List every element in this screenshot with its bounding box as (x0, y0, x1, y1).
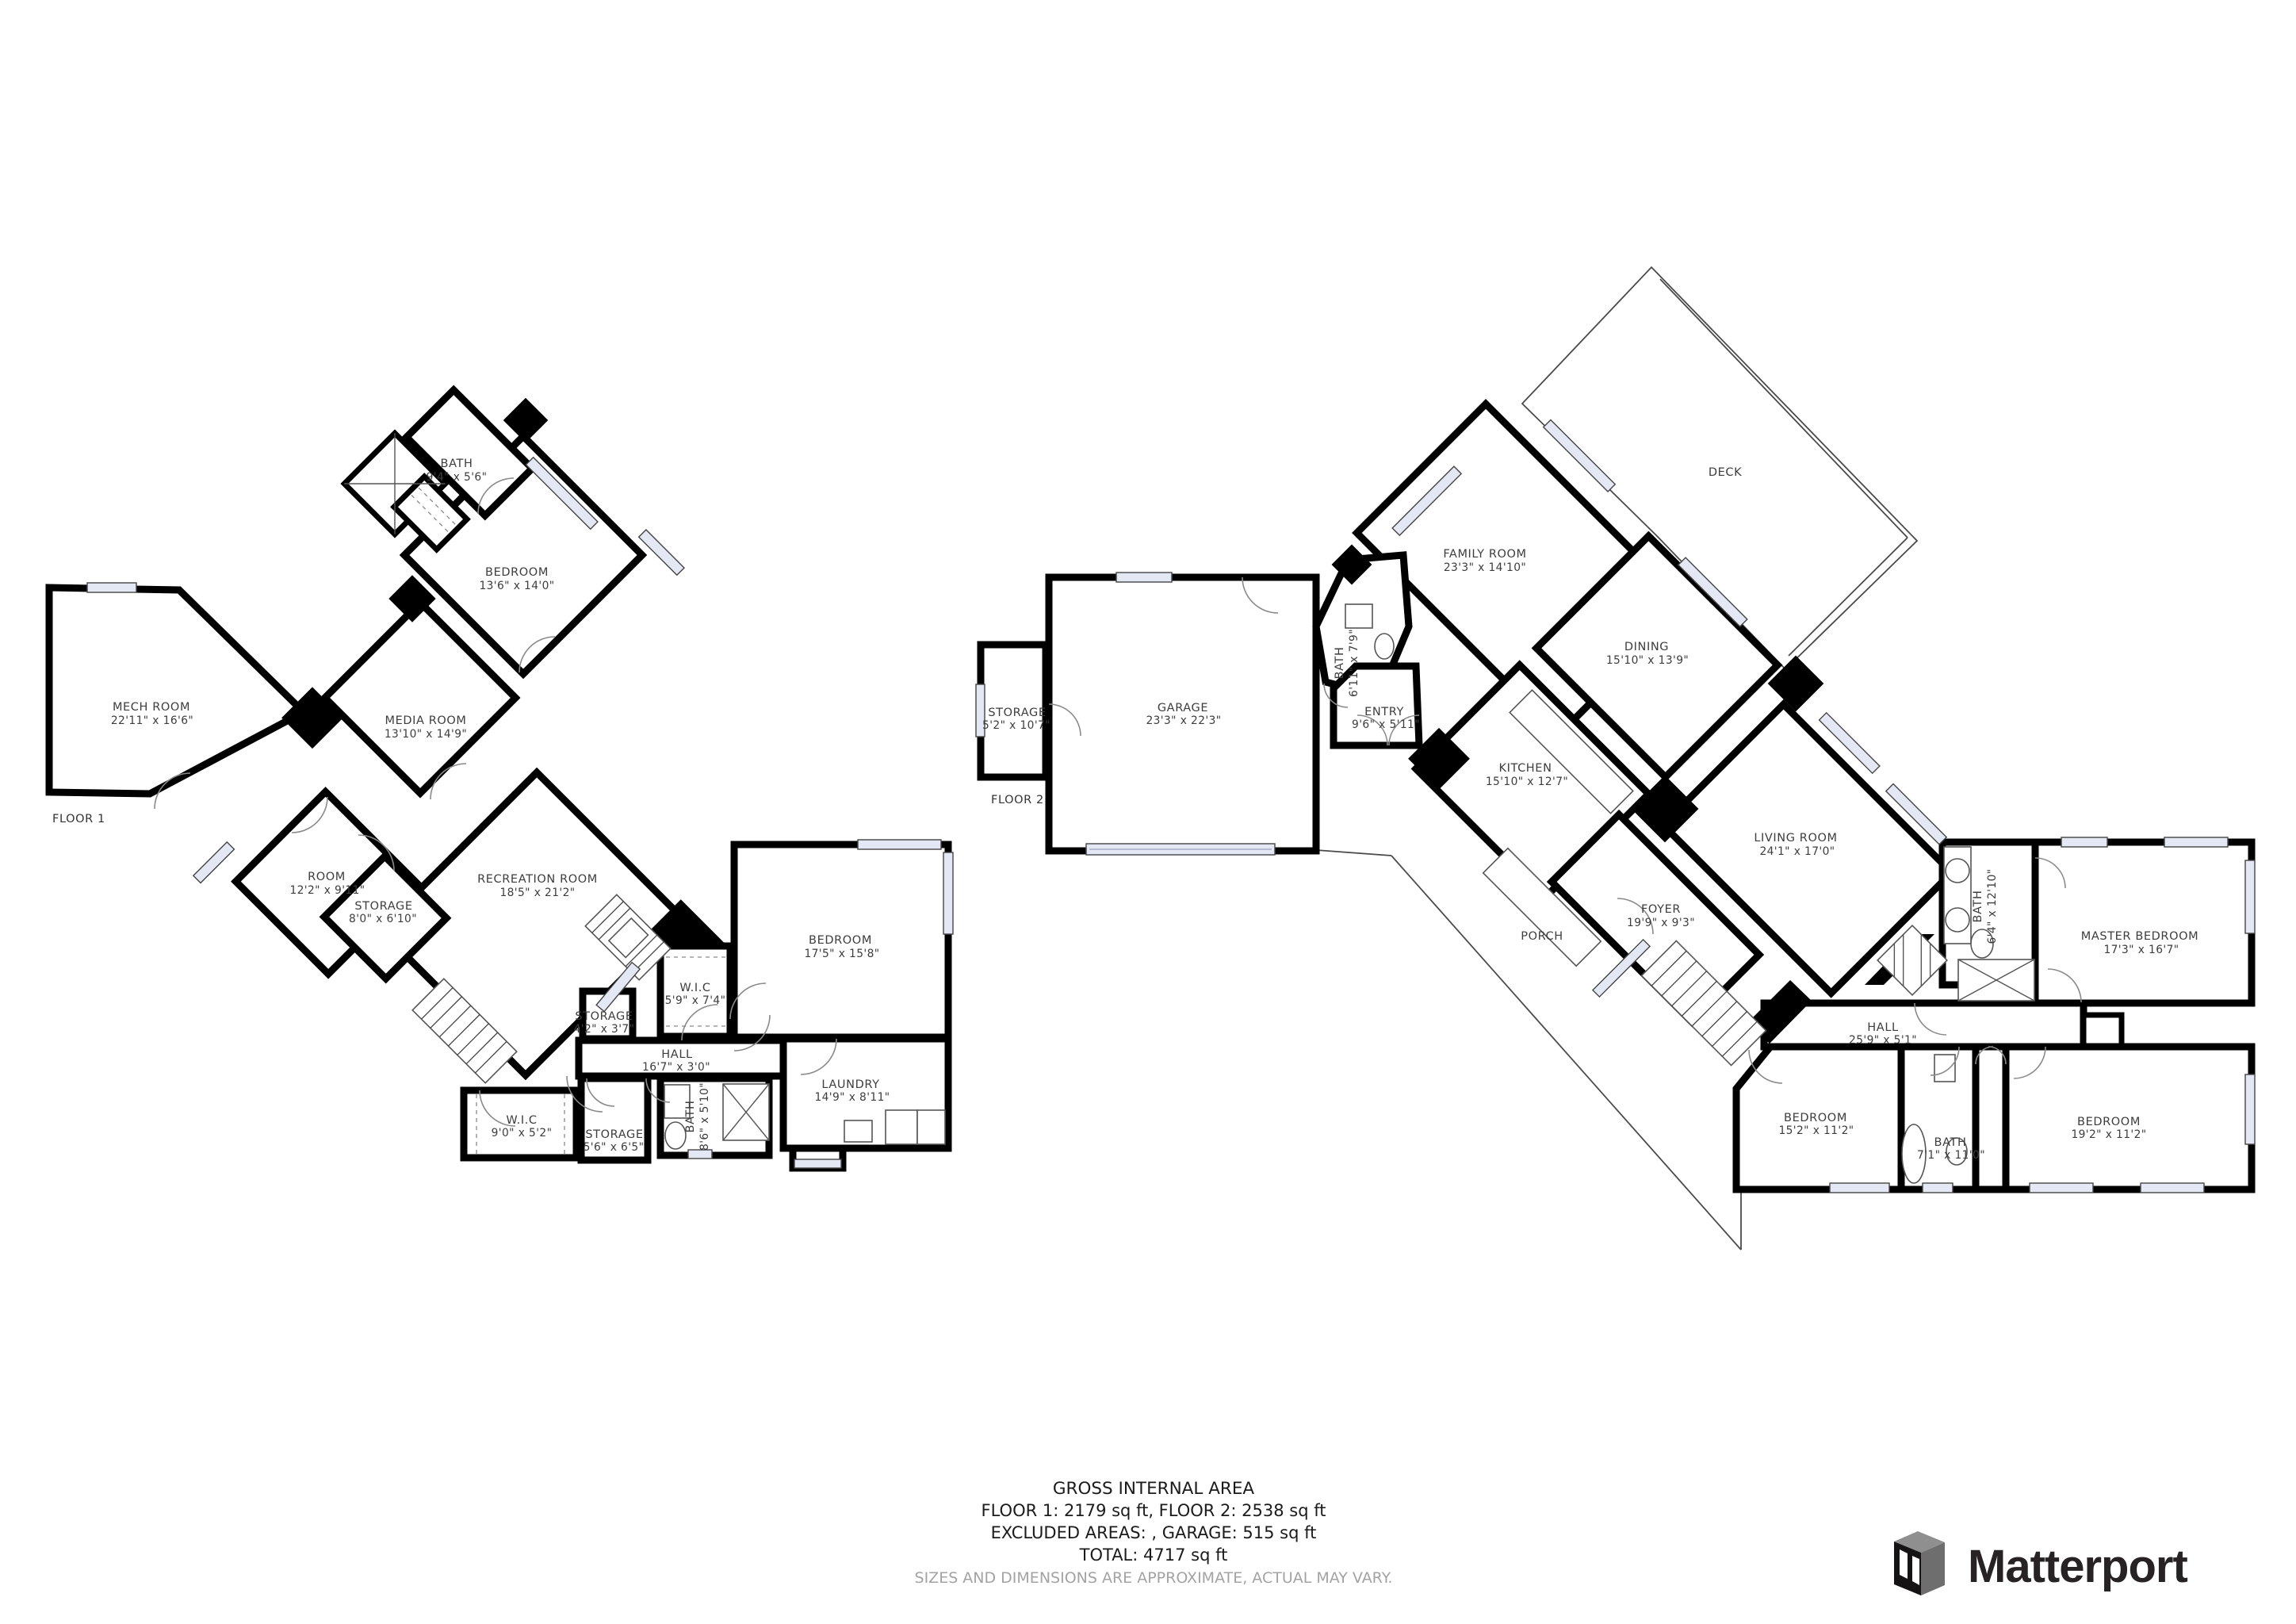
window (193, 842, 235, 883)
wall-junction (503, 398, 549, 443)
window (639, 530, 684, 575)
room-label-bedroom1: BEDROOM (485, 566, 549, 579)
room-dims-laundry: 14'9" x 8'11" (814, 1091, 890, 1104)
summary-disclaimer: SIZES AND DIMENSIONS ARE APPROXIMATE, AC… (915, 1569, 1393, 1587)
room-label-bedroom4: BEDROOM (2077, 1116, 2141, 1128)
room-label-bath1: BATH (441, 458, 473, 470)
room-label-foyer: FOYER (1641, 903, 1681, 916)
room-label-bath3: BATH (1334, 647, 1346, 680)
room-dims-living-room: 24'1" x 17'0" (1759, 845, 1835, 858)
room-dims-hall1: 16'7" x 3'0" (642, 1061, 710, 1074)
room-label-kitchen: KITCHEN (1498, 762, 1552, 775)
floor2-tag: FLOOR 2 (991, 794, 1044, 806)
room-label-storage2: STORAGE (575, 1010, 633, 1023)
closet-strip-outline (1976, 1047, 2006, 1189)
room-dims-bedroom3: 15'2" x 11'2" (1778, 1124, 1854, 1137)
room-dims-foyer: 19'9" x 9'3" (1627, 917, 1695, 929)
room-label-living-room: LIVING ROOM (1754, 832, 1837, 845)
window (1830, 1183, 1889, 1193)
matterport-logo-icon (1894, 1531, 1945, 1595)
sink (1946, 908, 1969, 932)
room-dims-mech-room: 22'11" x 16'6" (111, 714, 193, 727)
dryer (917, 1110, 945, 1144)
window (2245, 1074, 2255, 1144)
window (1116, 573, 1172, 582)
room-label-family-room: FAMILY ROOM (1443, 548, 1526, 561)
room-dims-room: 12'2" x 9'11" (289, 884, 365, 897)
laundry-sink (844, 1120, 872, 1142)
window (87, 583, 136, 592)
window (2141, 1183, 2204, 1193)
room-dims-bath3: 6'11" x 7'9" (1348, 629, 1360, 697)
room-label-bath4: BATH (1972, 891, 1984, 923)
room-label-mech-room: MECH ROOM (113, 701, 190, 714)
room-label-deck: DECK (1709, 466, 1742, 479)
sink (1946, 859, 1969, 883)
summary-floors: FLOOR 1: 2179 sq ft, FLOOR 2: 2538 sq ft (982, 1501, 1326, 1520)
room-dims-bedroom1: 13'6" x 14'0" (479, 580, 554, 592)
matterport-logo: Matterport (1894, 1531, 2187, 1595)
mech-room-outline (49, 588, 304, 794)
porch-outline (1316, 850, 1391, 856)
room-dims-bath4: 6'4" x 12'10" (1986, 868, 1999, 944)
room-dims-bedroom4: 19'2" x 11'2" (2071, 1128, 2146, 1141)
room-dims-master-bedroom: 17'3" x 16'7" (2103, 944, 2179, 956)
room-dims-dining: 15'10" x 13'9" (1606, 654, 1689, 667)
window (1923, 1183, 1953, 1193)
room-label-storage1: STORAGE (354, 900, 412, 913)
room-dims-family-room: 23'3" x 14'10" (1444, 561, 1526, 574)
window (2245, 860, 2255, 933)
hall2-closet (2084, 1015, 2122, 1047)
room-label-wic1: W.I.C (679, 982, 710, 994)
floor2-plan: DECK FAMILY ROOM 23'3" x 14'10" DINING 1… (976, 267, 2255, 1250)
room-dims-storage1: 8'0" x 6'10" (349, 913, 417, 925)
room-dims-hall2: 25'9" x 5'1" (1849, 1034, 1917, 1047)
room-label-bedroom2: BEDROOM (809, 934, 872, 947)
toilet (1375, 634, 1394, 659)
room-dims-storage2: 4'2" x 3'7" (574, 1023, 635, 1036)
room-dims-recreation: 18'5" x 21'2" (499, 887, 575, 899)
floor1-plan: BATH 9'4" x 5'6" BEDROOM 13'6" x 14'0" M… (49, 390, 953, 1168)
washer (886, 1110, 917, 1144)
floorplan-canvas: BATH 9'4" x 5'6" BEDROOM 13'6" x 14'0" M… (0, 0, 2296, 1624)
room-label-recreation: RECREATION ROOM (477, 873, 598, 886)
room-dims-bath5: 7'1" x 11'0" (1917, 1149, 1985, 1162)
summary-excluded: EXCLUDED AREAS: , GARAGE: 515 sq ft (991, 1523, 1317, 1542)
room-dims-garage: 23'3" x 22'3" (1146, 714, 1221, 727)
area-summary: GROSS INTERNAL AREA FLOOR 1: 2179 sq ft,… (915, 1479, 1393, 1587)
deck-railing (1660, 279, 1908, 538)
floorplan-page: BATH 9'4" x 5'6" BEDROOM 13'6" x 14'0" M… (0, 0, 2296, 1624)
floor1-tag: FLOOR 1 (52, 813, 105, 825)
window (794, 1159, 841, 1168)
room-label-master-bedroom: MASTER BEDROOM (2081, 930, 2198, 943)
room-dims-wic1: 5'9" x 7'4" (665, 994, 726, 1007)
room-label-media-room: MEDIA ROOM (385, 714, 466, 727)
room-label-room: ROOM (308, 871, 346, 883)
room-label-porch: PORCH (1521, 930, 1563, 943)
room-dims-wic2: 9'0" x 5'2" (492, 1127, 553, 1139)
window (943, 852, 953, 934)
summary-total: TOTAL: 4717 sq ft (1079, 1545, 1228, 1565)
sink (1934, 1055, 1955, 1082)
window (858, 840, 941, 849)
room-dims-bedroom2: 17'5" x 15'8" (804, 948, 879, 960)
room-label-bath2: BATH (684, 1101, 697, 1133)
room-label-bath5: BATH (1934, 1136, 1967, 1149)
window (2061, 837, 2107, 847)
room-label-wic2: W.I.C (506, 1114, 537, 1127)
room-dims-kitchen: 15'10" x 12'7" (1486, 776, 1568, 788)
master-bedroom-outline (2035, 842, 2252, 1003)
room-label-entry: ENTRY (1364, 706, 1404, 718)
room-label-garage: GARAGE (1158, 702, 1208, 714)
room-dims-storage4: 5'2" x 10'7" (982, 719, 1050, 732)
sink (1345, 604, 1372, 628)
room-label-storage3: STORAGE (585, 1128, 643, 1141)
window (2164, 837, 2228, 847)
room-label-bedroom3: BEDROOM (1784, 1112, 1847, 1124)
deck-railing (1789, 538, 1908, 656)
window (2030, 1183, 2093, 1193)
matterport-logo-text: Matterport (1968, 1541, 2187, 1592)
room-label-storage4: STORAGE (988, 707, 1046, 719)
room-label-dining: DINING (1624, 641, 1669, 653)
room-dims-entry: 9'6" x 5'11" (1352, 718, 1420, 731)
room-dims-bath2: 8'6" x 5'10" (698, 1082, 711, 1151)
room-label-hall1: HALL (661, 1048, 692, 1061)
room-label-hall2: HALL (1867, 1021, 1898, 1034)
room-dims-bath1: 9'4" x 5'6" (427, 471, 488, 484)
room-dims-storage3: 5'6" x 6'5" (584, 1141, 645, 1154)
room-label-laundry: LAUNDRY (821, 1078, 879, 1091)
toilet (665, 1122, 686, 1149)
summary-title: GROSS INTERNAL AREA (1053, 1479, 1255, 1499)
room-dims-media-room: 13'10" x 14'9" (385, 728, 467, 741)
